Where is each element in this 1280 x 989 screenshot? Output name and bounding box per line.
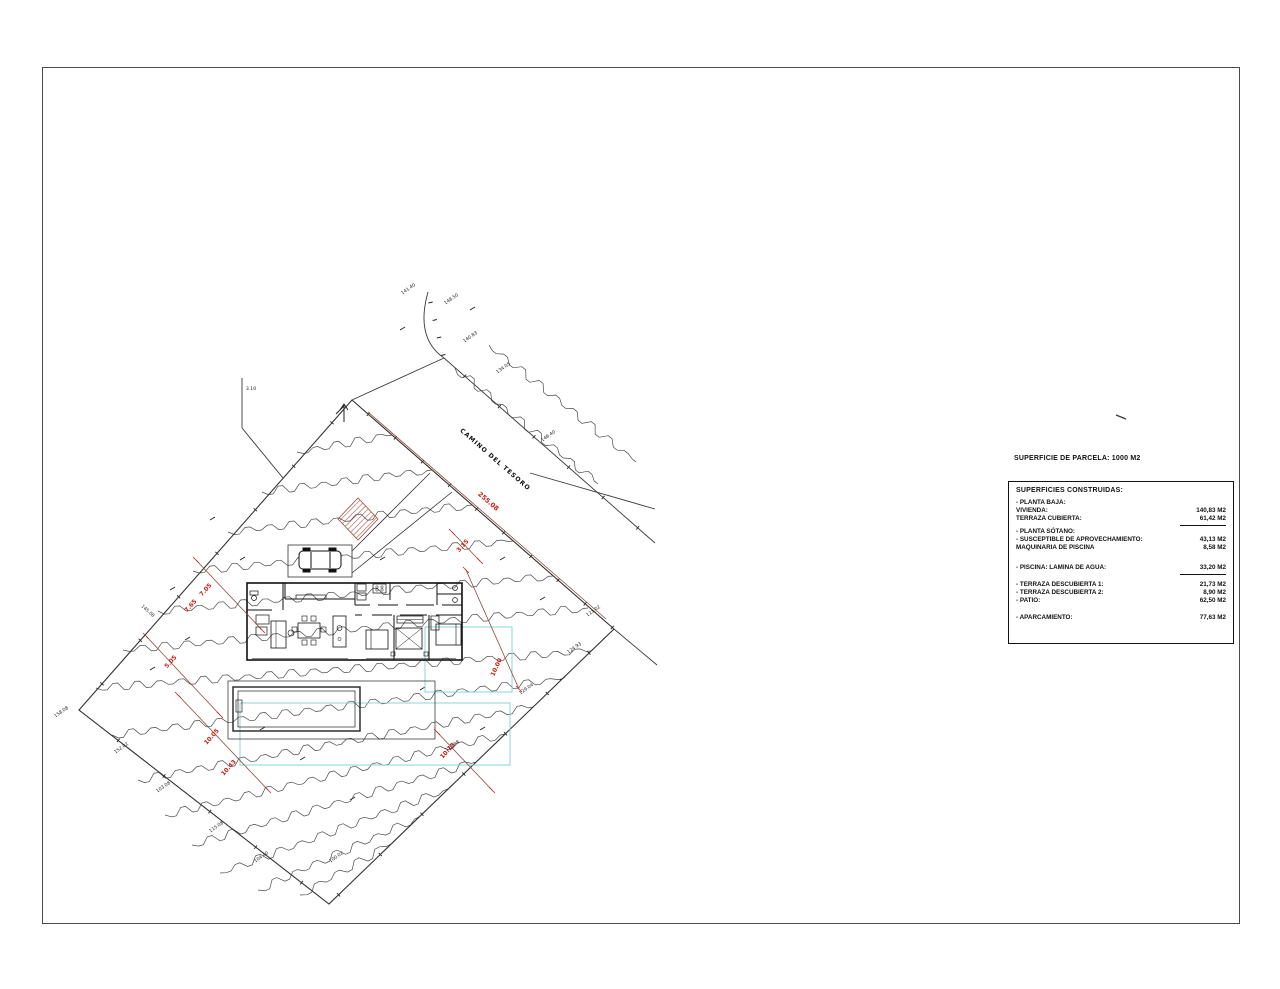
setback-dimension-labels: 7.65 7.05 5.05 10.05 10.43 3.15 10.00 10…: [163, 538, 503, 777]
house-floor-plan: [247, 583, 462, 660]
table-row: - APARCAMIENTO: 77,63 M2: [1016, 614, 1226, 622]
svg-text:141.40: 141.40: [400, 282, 417, 296]
swimming-pool: [228, 681, 435, 739]
north-arrow-icon: [336, 404, 348, 422]
svg-text:124.93: 124.93: [566, 641, 583, 655]
table-row: - PISCINA: LAMINA DE AGUA: 33,20 M2: [1016, 564, 1226, 572]
table-row: MAQUINARIA DE PISCINA 8,58 M2: [1016, 544, 1226, 552]
svg-text:115.08: 115.08: [208, 820, 225, 834]
svg-text:140.83: 140.83: [462, 330, 479, 344]
table-row: - SUSCEPTIBLE DE APROVECHAMIENTO: 43,13 …: [1016, 536, 1226, 544]
svg-text:3.10: 3.10: [246, 386, 256, 392]
table-row: - PLANTA BAJA:: [1016, 499, 1226, 507]
table-row: - PLANTA SÓTANO:: [1016, 528, 1226, 536]
svg-text:148.50: 148.50: [443, 292, 460, 306]
areas-table-heading: SUPERFICIES CONSTRUIDAS:: [1016, 487, 1226, 494]
svg-text:103.08: 103.08: [155, 780, 172, 794]
plan-sheet-page: CAMINO DEL TESORO 255.08 7.65 7.05 5.05 …: [0, 0, 1280, 989]
table-row: TERRAZA CUBIERTA: 61,42 M2: [1016, 515, 1226, 523]
svg-text:145.08: 145.08: [140, 604, 156, 619]
svg-text:7.05: 7.05: [198, 582, 213, 598]
hatched-diamond-feature: [338, 498, 378, 540]
svg-text:146.40: 146.40: [540, 429, 557, 443]
road-frontage-dimension-line: [368, 412, 606, 619]
built-areas-table: SUPERFICIES CONSTRUIDAS: - PLANTA BAJA: …: [1008, 481, 1234, 644]
car-icon: [299, 548, 341, 572]
table-row: - PATIO: 62,50 M2: [1016, 597, 1226, 605]
road-lines: [242, 292, 1126, 665]
svg-text:158.08: 158.08: [53, 705, 70, 719]
road-name-label: CAMINO DEL TESORO: [458, 427, 531, 492]
table-row: - TERRAZA DESCUBIERTA 2: 8,90 M2: [1016, 589, 1226, 597]
svg-text:3.15: 3.15: [455, 538, 470, 554]
svg-text:129.04: 129.04: [518, 682, 535, 696]
subtotal-rule: [1180, 574, 1226, 575]
svg-text:134.05: 134.05: [495, 361, 512, 375]
survey-elevation-labels: 141.40 148.50 140.83 134.05 146.40 121.0…: [53, 282, 602, 864]
svg-text:10.43: 10.43: [220, 759, 238, 778]
parcel-area-title: SUPERFICIE DE PARCELA: 1000 M2: [1014, 455, 1140, 462]
subtotal-rule: [1180, 525, 1226, 526]
table-row: VIVIENDA: 140,83 M2: [1016, 507, 1226, 515]
table-row: - TERRAZA DESCUBIERTA 1: 21,73 M2: [1016, 581, 1226, 589]
terrain-contour-lines: [96, 345, 636, 895]
svg-text:10.00: 10.00: [489, 657, 503, 677]
